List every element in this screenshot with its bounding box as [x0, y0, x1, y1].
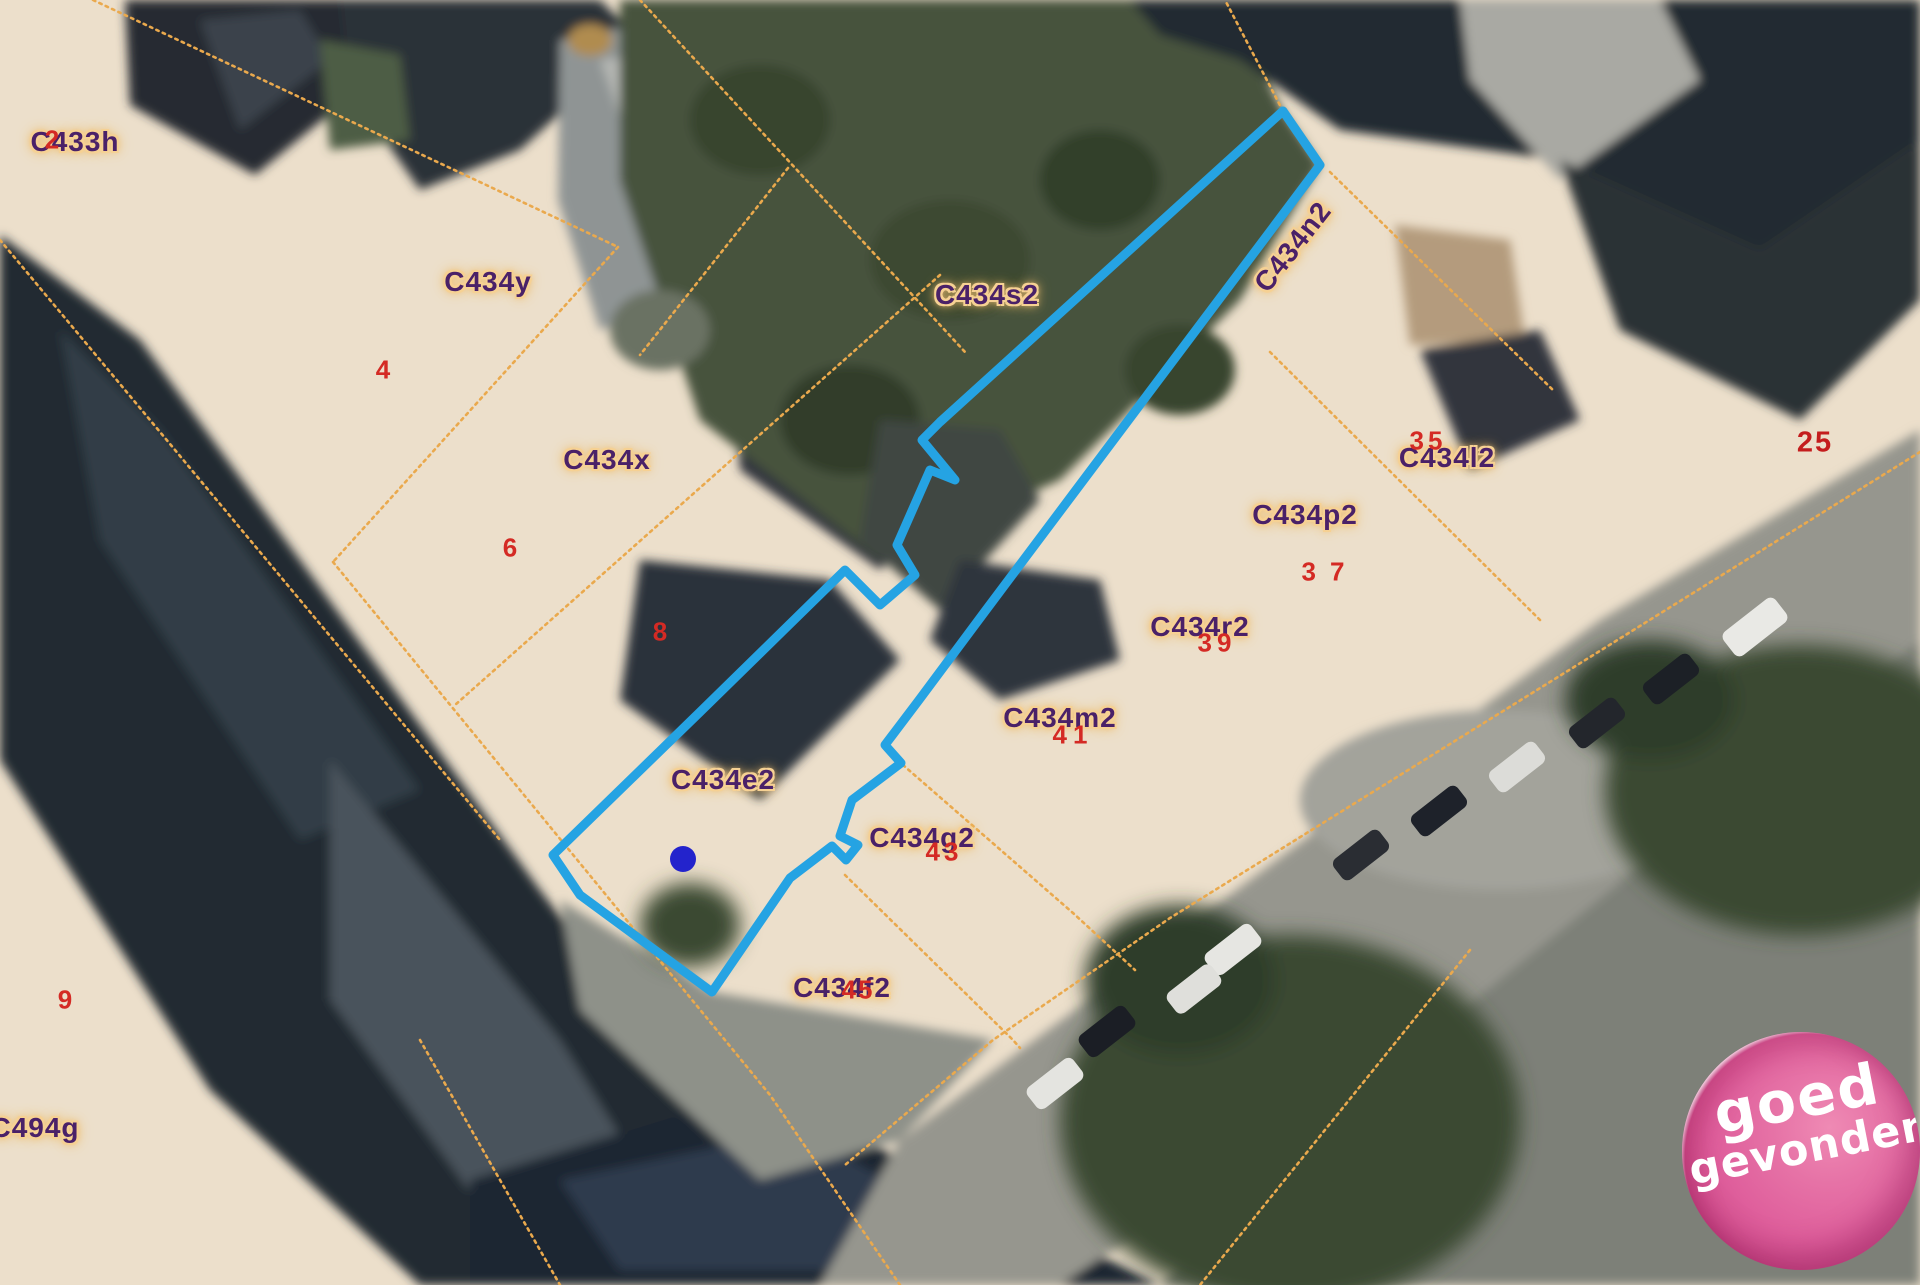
- parcel-boundary-line: [93, 0, 618, 247]
- house-number-label: 43: [926, 837, 963, 868]
- parcel-boundary-line: [903, 765, 1135, 970]
- selected-parcel-marker[interactable]: [670, 846, 696, 872]
- parcel-label: C434s2: [935, 279, 1039, 311]
- parcel-boundary-line: [1200, 950, 1470, 1285]
- house-number-label: 45: [842, 975, 875, 1006]
- house-number-label: 41: [1053, 720, 1094, 751]
- parcel-label: C494g: [0, 1112, 80, 1144]
- house-number-label: 4: [376, 355, 390, 386]
- house-number-label: 39: [1198, 628, 1237, 659]
- house-number-label: 25: [1797, 427, 1833, 460]
- house-number-label: 9: [58, 985, 72, 1016]
- house-number-label: 6: [503, 533, 517, 564]
- parcel-boundary-line: [1225, 0, 1283, 111]
- parcel-boundary-line: [640, 0, 965, 352]
- parcel-label: C434x: [563, 444, 651, 476]
- parcel-boundary-line: [1330, 172, 1555, 392]
- parcel-boundary-line: [420, 1040, 560, 1285]
- parcel-label: C434y: [444, 266, 532, 298]
- cadastral-vector-layer: [0, 0, 1920, 1285]
- house-number-label: 8: [653, 617, 667, 648]
- parcel-boundary-line: [640, 168, 788, 355]
- house-number-label: 35: [1410, 426, 1447, 457]
- parcel-label: C434e2: [671, 764, 775, 796]
- house-number-label: 2: [45, 125, 59, 156]
- parcel-boundary-line: [845, 875, 1020, 1048]
- goedgevonden-logo: goed gevonden: [1682, 1032, 1920, 1270]
- parcel-label: C434p2: [1252, 499, 1358, 531]
- cadastral-map[interactable]: C433hC434yC434s2C434n2C434xC434l2C434p2C…: [0, 0, 1920, 1285]
- parcel-boundary-line: [455, 275, 940, 705]
- house-number-label: 37: [1302, 557, 1359, 588]
- parcel-boundary-line: [0, 240, 500, 840]
